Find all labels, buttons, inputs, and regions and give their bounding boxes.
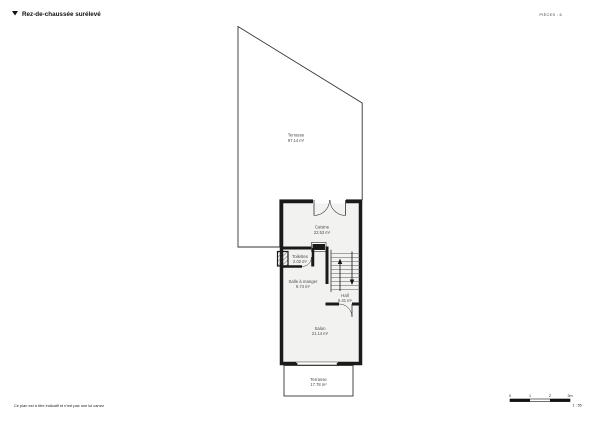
- page-title: Rez-de-chaussée surélevé: [22, 11, 101, 18]
- room-area-cuisine: 22.53 m²: [314, 230, 331, 235]
- room-area-salon: 21.14 m²: [312, 331, 329, 336]
- room-label-cuisine: Cuisine: [315, 225, 330, 230]
- scale-bar-segment-3: [550, 399, 570, 402]
- scale-tick-0: 0: [509, 394, 511, 398]
- floor-plan-canvas: Rez-de-chaussée surélevé PIÈCES : 6 Terr…: [0, 0, 600, 425]
- scale-bar-segment-1: [510, 399, 530, 402]
- disclaimer-text: Ce plan est à titre indicatif et n'est p…: [14, 403, 104, 408]
- room-area-terrasse-bottom: 17.78 m²: [310, 382, 327, 387]
- scale-tick-1: 1: [529, 394, 531, 398]
- rooms-count-badge: PIÈCES : 6: [539, 12, 562, 17]
- room-area-hall: 6.41 m²: [338, 298, 353, 303]
- scale-ratio: 1 : 55: [573, 404, 582, 408]
- room-area-salle-a-manger: 9.74 m²: [296, 284, 311, 289]
- scale-tick-2: 2: [549, 394, 551, 398]
- room-label-terrasse-top: Terrasse: [288, 133, 305, 138]
- fixture-label-chip: [313, 244, 326, 250]
- room-area-toilettes: 2.02 m²: [293, 259, 308, 264]
- duct-hatched-area: [278, 252, 289, 267]
- scale-tick-3: 3m: [567, 394, 572, 398]
- room-area-terrasse-top: 97.14 m²: [288, 138, 305, 143]
